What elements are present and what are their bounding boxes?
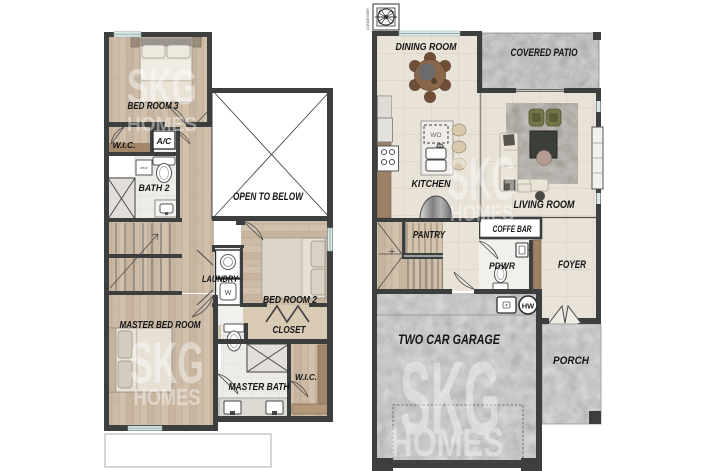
- svg-text:PORCH: PORCH: [553, 355, 590, 367]
- svg-text:HOMES: HOMES: [127, 114, 197, 136]
- svg-text:BED ROOM 3: BED ROOM 3: [128, 100, 179, 112]
- svg-text:A/C: A/C: [156, 136, 173, 146]
- svg-text:DINING ROOM: DINING ROOM: [396, 41, 457, 53]
- svg-text:CLOSET: CLOSET: [273, 324, 307, 336]
- svg-text:BATH 2: BATH 2: [139, 183, 170, 193]
- svg-text:LAUNDRY: LAUNDRY: [202, 274, 239, 284]
- svg-text:LIVING ROOM: LIVING ROOM: [514, 199, 576, 211]
- svg-text:PANTRY: PANTRY: [413, 230, 446, 241]
- svg-text:HOMES: HOMES: [390, 421, 504, 465]
- svg-text:TWO CAR GARAGE: TWO CAR GARAGE: [398, 332, 501, 347]
- svg-text:CONDENSER: CONDENSER: [366, 8, 370, 30]
- svg-text:MASTER BED ROOM: MASTER BED ROOM: [120, 319, 201, 331]
- svg-text:WO: WO: [430, 132, 441, 139]
- svg-text:W.I.C.: W.I.C.: [113, 141, 136, 150]
- svg-text:KITCHEN: KITCHEN: [412, 178, 451, 190]
- svg-text:W.I.C.: W.I.C.: [295, 373, 317, 382]
- svg-text:W: W: [225, 290, 232, 297]
- svg-text:FOYER: FOYER: [558, 259, 586, 271]
- svg-text:HOMES: HOMES: [450, 200, 514, 226]
- svg-text:HW: HW: [522, 302, 535, 311]
- svg-text:HOMES: HOMES: [134, 384, 201, 410]
- svg-text:wash: wash: [140, 166, 148, 170]
- svg-text:OPEN TO BELOW: OPEN TO BELOW: [233, 191, 304, 203]
- svg-text:MASTER BATH: MASTER BATH: [229, 381, 290, 393]
- svg-text:PDWR: PDWR: [489, 261, 515, 272]
- svg-text:BED ROOM 2: BED ROOM 2: [263, 294, 317, 306]
- svg-text:COVERED PATIO: COVERED PATIO: [511, 47, 578, 59]
